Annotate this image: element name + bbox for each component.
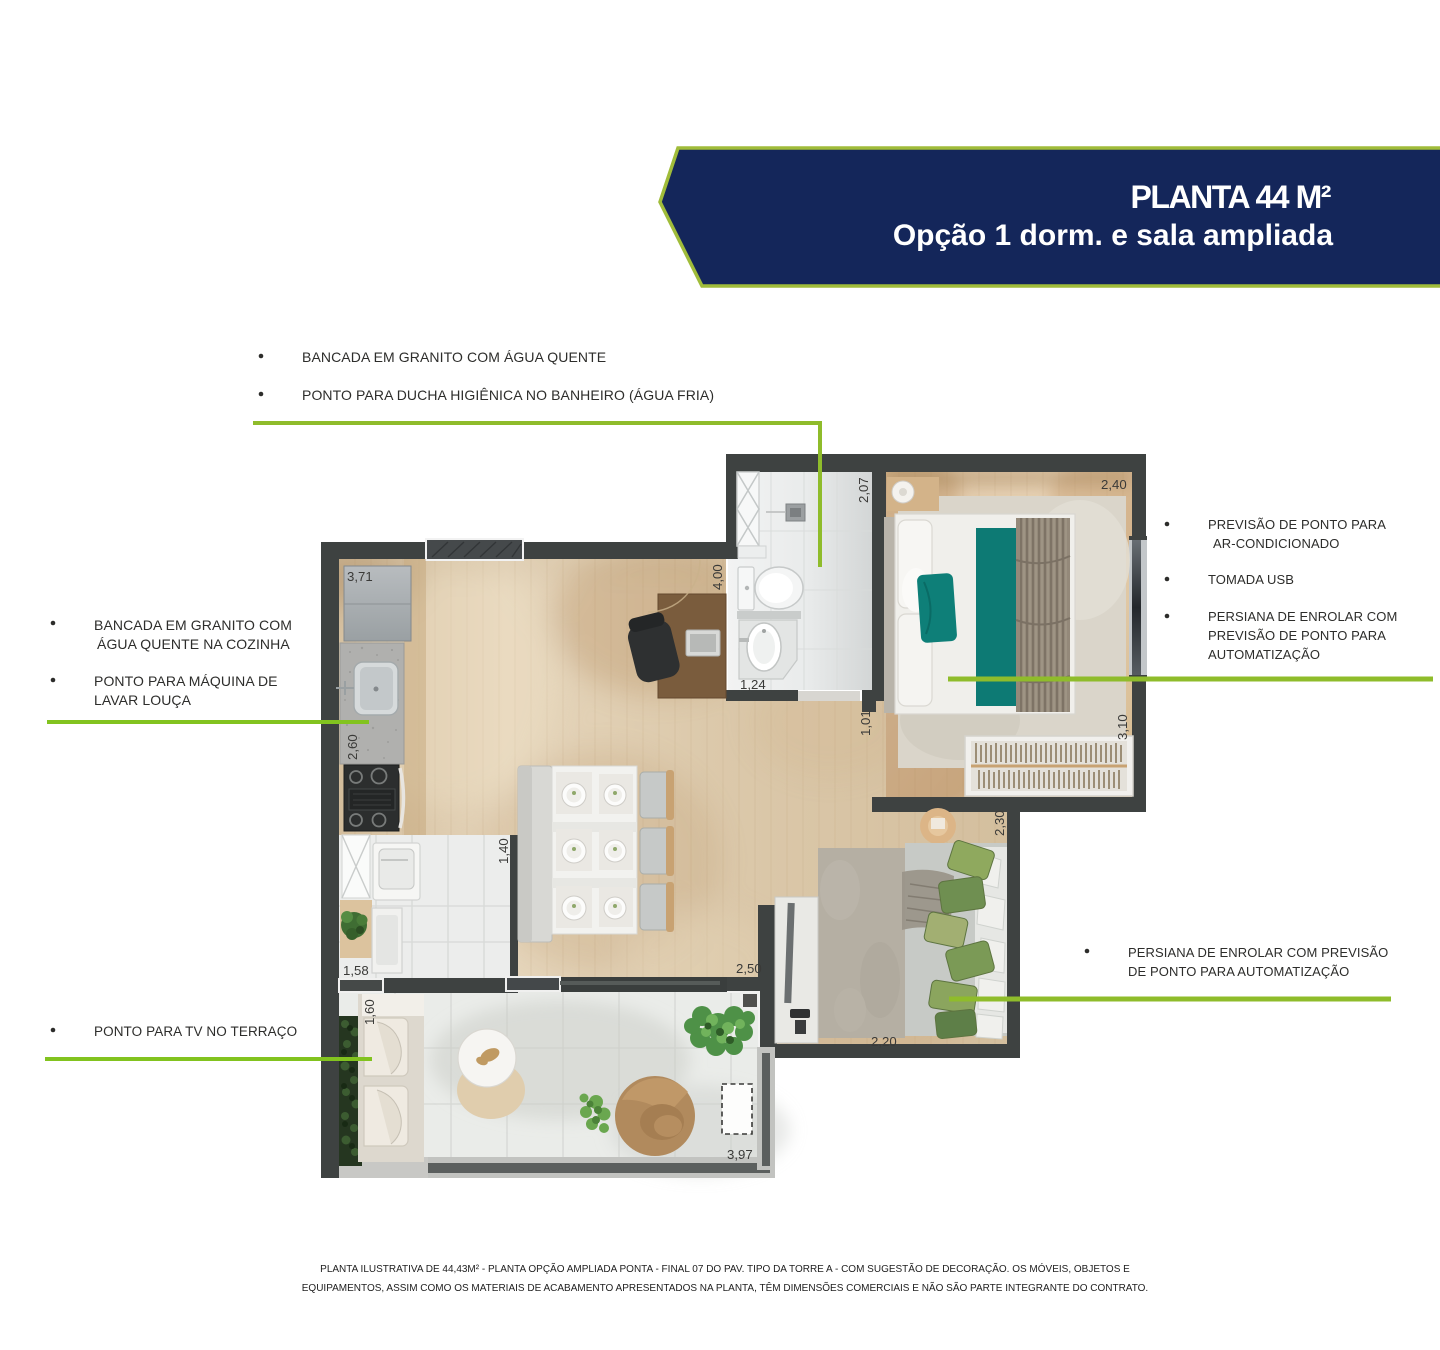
svg-text:BANCADA EM GRANITO COM ÁGUA QU: BANCADA EM GRANITO COM ÁGUA QUENTE: [302, 349, 606, 365]
svg-text:AR-CONDICIONADO: AR-CONDICIONADO: [1213, 536, 1339, 551]
svg-text:1,24: 1,24: [740, 677, 766, 692]
svg-text:1,58: 1,58: [343, 963, 369, 978]
svg-text:PONTO PARA DUCHA HIGIÊNICA NO: PONTO PARA DUCHA HIGIÊNICA NO BANHEIRO (…: [302, 387, 714, 403]
svg-text:3,10: 3,10: [1115, 714, 1130, 740]
svg-text:PREVISÃO DE PONTO PARA: PREVISÃO DE PONTO PARA: [1208, 628, 1386, 643]
svg-text:DE PONTO PARA AUTOMATIZAÇÃO: DE PONTO PARA AUTOMATIZAÇÃO: [1128, 964, 1349, 979]
svg-text:1,60: 1,60: [362, 999, 377, 1025]
svg-text:2,30: 2,30: [992, 810, 1007, 836]
svg-text:PONTO PARA TV NO TERRAÇO: PONTO PARA TV NO TERRAÇO: [94, 1024, 297, 1039]
svg-text:1,01: 1,01: [858, 710, 873, 736]
svg-text:BANCADA EM GRANITO COM: BANCADA EM GRANITO COM: [94, 617, 292, 633]
svg-text:LAVAR LOUÇA: LAVAR LOUÇA: [94, 692, 192, 708]
svg-text:3,97: 3,97: [727, 1147, 753, 1162]
svg-text:2,40: 2,40: [1101, 477, 1127, 492]
svg-text:2,07: 2,07: [856, 477, 871, 503]
svg-text:PERSIANA DE ENROLAR COM PREVIS: PERSIANA DE ENROLAR COM PREVISÃO: [1128, 945, 1388, 960]
svg-text:PLANTA ILUSTRATIVA DE 44,43M²: PLANTA ILUSTRATIVA DE 44,43M² - PLANTA O…: [320, 1262, 1130, 1275]
svg-text:PREVISÃO DE PONTO PARA: PREVISÃO DE PONTO PARA: [1208, 517, 1386, 532]
svg-text:ÁGUA QUENTE NA COZINHA: ÁGUA QUENTE NA COZINHA: [97, 636, 290, 652]
svg-text:4,00: 4,00: [710, 564, 725, 590]
svg-text:EQUIPAMENTOS, ASSIM COMO OS MA: EQUIPAMENTOS, ASSIM COMO OS MATERIAIS DE…: [302, 1281, 1148, 1294]
svg-text:2,50: 2,50: [736, 961, 762, 976]
svg-text:2,20: 2,20: [871, 1034, 897, 1049]
svg-text:PERSIANA DE ENROLAR COM: PERSIANA DE ENROLAR COM: [1208, 609, 1397, 624]
svg-text:AUTOMATIZAÇÃO: AUTOMATIZAÇÃO: [1208, 647, 1320, 662]
svg-text:PONTO PARA MÁQUINA DE: PONTO PARA MÁQUINA DE: [94, 673, 278, 689]
svg-text:3,71: 3,71: [347, 569, 373, 584]
svg-text:Opção 1 dorm. e sala ampliada: Opção 1 dorm. e sala ampliada: [893, 219, 1333, 252]
svg-text:TOMADA USB: TOMADA USB: [1208, 572, 1294, 587]
svg-text:1,40: 1,40: [496, 838, 511, 864]
svg-text:PLANTA 44 M²: PLANTA 44 M²: [1131, 179, 1331, 215]
svg-text:2,60: 2,60: [345, 734, 360, 760]
